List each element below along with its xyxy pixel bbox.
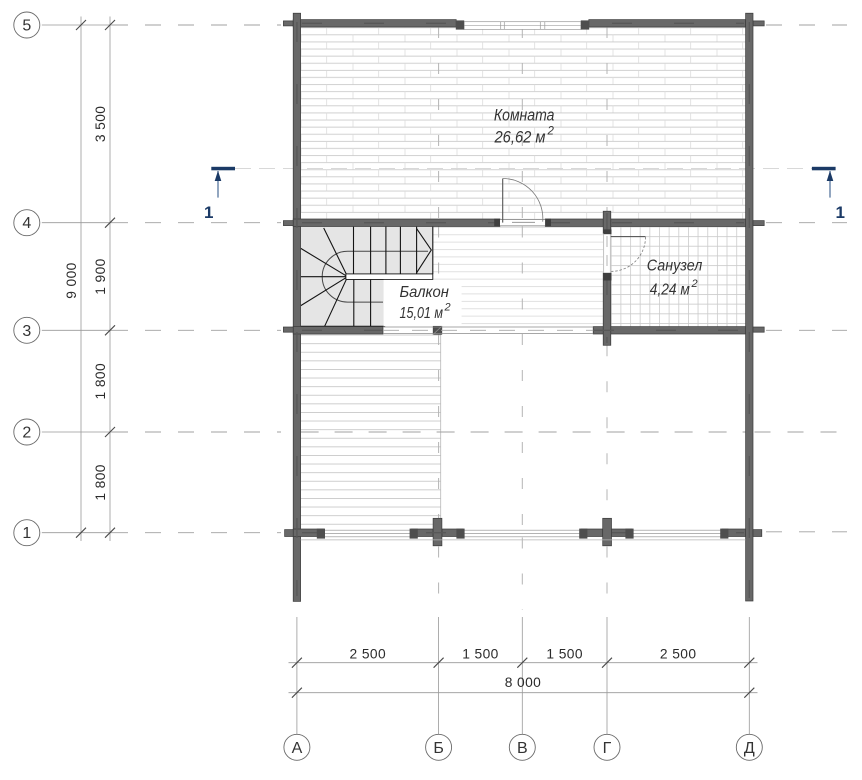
svg-text:2: 2 <box>444 302 451 314</box>
svg-text:3 500: 3 500 <box>93 106 108 143</box>
svg-text:2 500: 2 500 <box>660 647 697 662</box>
svg-text:Г: Г <box>603 740 612 757</box>
svg-text:2: 2 <box>547 126 555 138</box>
svg-text:В: В <box>517 740 528 757</box>
svg-text:1 500: 1 500 <box>462 647 499 662</box>
svg-text:2: 2 <box>22 425 31 442</box>
svg-text:4: 4 <box>22 215 31 232</box>
svg-text:8 000: 8 000 <box>505 675 542 690</box>
svg-text:Д: Д <box>744 740 755 757</box>
svg-text:2: 2 <box>691 278 698 290</box>
svg-text:1: 1 <box>22 525 31 542</box>
svg-text:5: 5 <box>22 18 31 35</box>
svg-text:1 800: 1 800 <box>93 464 108 501</box>
svg-text:15,01 м: 15,01 м <box>400 305 444 322</box>
svg-text:9 000: 9 000 <box>64 262 79 299</box>
svg-text:4,24 м: 4,24 м <box>650 282 690 299</box>
svg-text:А: А <box>292 740 303 757</box>
svg-text:3: 3 <box>22 323 31 340</box>
svg-text:1 500: 1 500 <box>546 647 583 662</box>
svg-text:26,62 м: 26,62 м <box>494 128 546 146</box>
svg-text:Балкон: Балкон <box>400 284 450 301</box>
svg-text:1 900: 1 900 <box>93 258 108 295</box>
svg-text:2 500: 2 500 <box>350 647 387 662</box>
svg-text:Б: Б <box>433 740 444 757</box>
svg-text:1: 1 <box>836 203 845 222</box>
svg-text:1 800: 1 800 <box>93 363 108 400</box>
svg-text:1: 1 <box>204 203 213 222</box>
svg-text:Санузел: Санузел <box>647 258 703 275</box>
svg-text:Комната: Комната <box>494 106 555 125</box>
